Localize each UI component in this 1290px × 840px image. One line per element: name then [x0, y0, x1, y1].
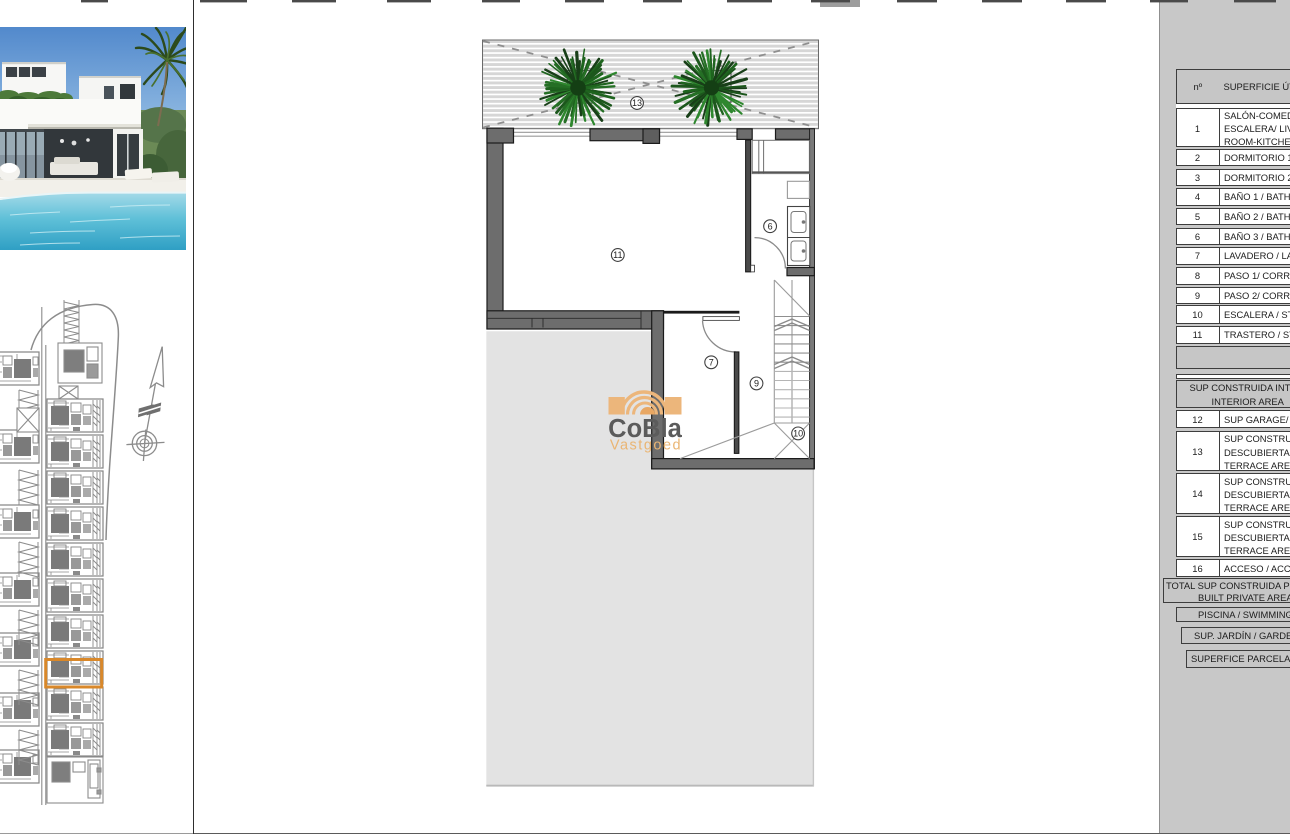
svg-text:11: 11	[613, 250, 622, 260]
svg-text:Vastgoed: Vastgoed	[610, 437, 682, 453]
svg-text:13: 13	[632, 98, 642, 108]
svg-text:7: 7	[709, 358, 714, 368]
svg-text:9: 9	[754, 379, 759, 389]
svg-text:6: 6	[768, 221, 773, 231]
svg-text:10: 10	[793, 429, 803, 439]
